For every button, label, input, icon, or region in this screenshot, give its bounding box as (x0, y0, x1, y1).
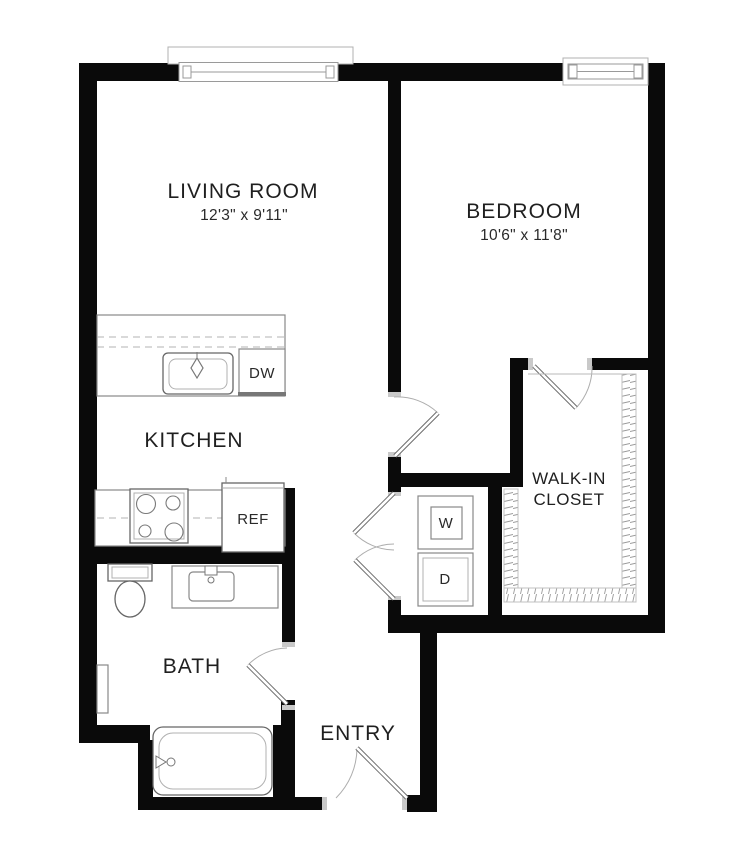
wall-tub-right (273, 725, 295, 797)
refrigerator-label: REF (237, 511, 269, 528)
laundry-fixtures (418, 496, 473, 606)
wall-bottom-bath (152, 797, 322, 810)
entry-door (336, 748, 407, 798)
kitchen-sink (163, 352, 233, 394)
wall-entry-foot (407, 795, 437, 812)
laundry-door-top (354, 493, 394, 550)
walk-in-closet-label-line2: CLOSET (533, 490, 604, 509)
bath-wall-niche (97, 665, 108, 713)
wall-bedroom-bottom-right (592, 358, 648, 370)
wall-wd-top (388, 473, 523, 487)
laundry-door-bottom (355, 544, 394, 599)
kitchen-island-counter (97, 315, 286, 396)
closet-rod-left (504, 489, 518, 588)
wall-bath-step (138, 740, 153, 810)
washer-label: W (439, 515, 454, 532)
wall-right (648, 63, 665, 633)
bath-fixtures (97, 564, 278, 795)
wall-left (79, 63, 97, 725)
bedroom-dimensions: 10'6" x 11'8" (480, 227, 568, 244)
floor-plan: LIVING ROOM 12'3" x 9'11" BEDROOM 10'6" … (0, 0, 740, 859)
wall-tub-right-upper (281, 700, 295, 727)
walk-in-closet-label-line1: WALK-IN (532, 469, 606, 488)
stove (130, 489, 188, 543)
toilet (108, 564, 152, 617)
closet-rod-bottom (504, 588, 636, 602)
living-room-window (168, 47, 353, 82)
bedroom-label: BEDROOM (466, 200, 582, 223)
labels: LIVING ROOM 12'3" x 9'11" BEDROOM 10'6" … (144, 180, 605, 745)
wall-wd-right (488, 485, 502, 633)
closet-fixtures (504, 374, 636, 602)
wall-wd-bottom-nub (388, 600, 401, 617)
vanity-faucet (205, 566, 217, 575)
floor-plan-canvas: LIVING ROOM 12'3" x 9'11" BEDROOM 10'6" … (0, 0, 740, 859)
bath-door (248, 648, 287, 704)
living-room-label: LIVING ROOM (167, 180, 318, 203)
bathtub (153, 727, 272, 795)
entry-label: ENTRY (320, 722, 396, 745)
bedroom-window (563, 58, 648, 85)
bath-label: BATH (163, 655, 221, 678)
bath-vanity (172, 566, 278, 608)
wall-entry-right (420, 630, 437, 812)
kitchen-label: KITCHEN (144, 429, 243, 452)
dishwasher-label: DW (249, 365, 275, 382)
wall-divider-living-bedroom (388, 81, 401, 397)
dryer-label: D (439, 571, 450, 588)
closet-door (534, 366, 592, 408)
wall-closet-left (510, 358, 523, 487)
bedroom-door (394, 397, 438, 456)
living-room-dimensions: 12'3" x 9'11" (200, 207, 288, 224)
closet-rod-right (622, 374, 636, 588)
